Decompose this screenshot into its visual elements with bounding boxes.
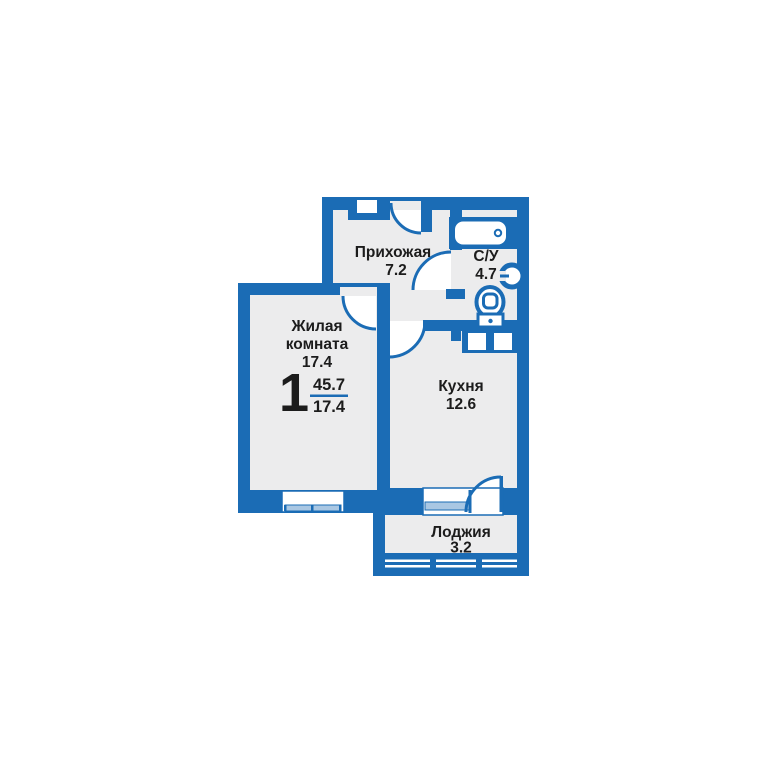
toilet-icon <box>477 287 504 327</box>
wall-living-kitchen-divider <box>377 283 390 492</box>
room-label-kitchen: Кухня <box>438 378 483 395</box>
bathtub-icon <box>449 217 517 249</box>
wall-kitchen-south-left <box>385 488 423 515</box>
fraction-line <box>310 395 348 398</box>
room-label-loggia: Лоджия <box>431 524 491 541</box>
floor-plan: Прихожая 7.2 С/У 4.7 Жилая комната 17.4 … <box>0 0 768 768</box>
vent-shaft <box>462 330 517 353</box>
wall-pillar <box>451 331 461 341</box>
apartment-living-area: 17.4 <box>313 398 346 416</box>
room-area-hallway: 7.2 <box>385 262 407 279</box>
floor-plan-canvas: Прихожая 7.2 С/У 4.7 Жилая комната 17.4 … <box>0 0 768 768</box>
wall-right <box>517 197 529 576</box>
balcony-door-leaf <box>500 476 504 512</box>
wall-living-room-left <box>238 283 250 513</box>
wall-bathroom-stub <box>446 289 465 299</box>
room-area-kitchen: 12.6 <box>446 396 477 413</box>
room-label-hallway: Прихожая <box>355 244 431 261</box>
sink-icon <box>498 265 523 287</box>
room-area-loggia: 3.2 <box>450 540 472 557</box>
living-room-opening-strip <box>340 283 377 287</box>
wall-hallway-kitchen <box>423 320 529 331</box>
wall-hallway-left <box>322 197 333 295</box>
entrance-jamb-pillar <box>421 201 432 232</box>
room-label-bathroom: С/У <box>473 248 499 265</box>
wall-living-room-top <box>238 283 340 295</box>
living-room-window <box>282 491 344 512</box>
wall-kitchen-south-right <box>503 488 517 515</box>
apartment-rooms-count: 1 <box>279 363 309 423</box>
room-label-living-line1: Жилая <box>290 318 342 335</box>
room-area-bathroom: 4.7 <box>475 266 497 283</box>
entrance-door <box>357 200 377 213</box>
room-label-living-line2: комната <box>286 336 349 353</box>
entrance-opening <box>390 201 421 210</box>
apartment-total-area: 45.7 <box>313 376 345 394</box>
